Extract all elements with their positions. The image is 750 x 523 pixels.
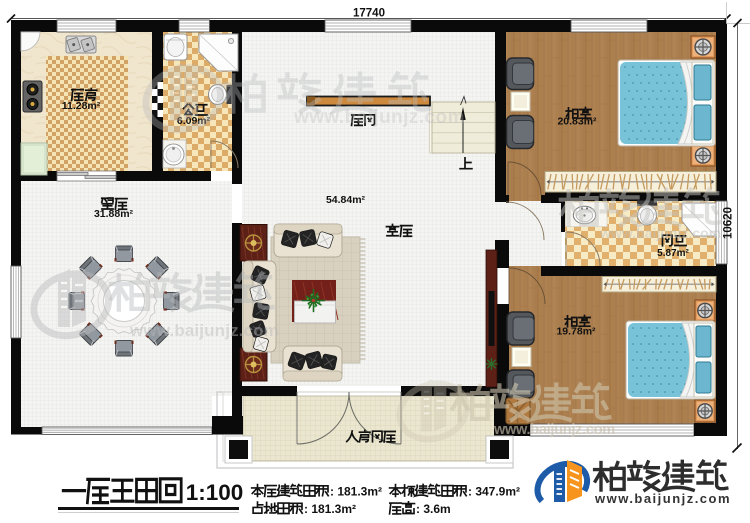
svg-text:5.87m²: 5.87m²: [657, 248, 689, 259]
svg-text:31.88m²: 31.88m²: [94, 208, 134, 220]
svg-text:www.baijunjz.com: www.baijunjz.com: [594, 491, 731, 506]
svg-text:20.83m²: 20.83m²: [557, 116, 597, 128]
svg-text:: 347.9m²: : 347.9m²: [468, 485, 520, 499]
svg-text:www.baijunjz.com: www.baijunjz.com: [599, 225, 722, 241]
svg-text:19.78m²: 19.78m²: [556, 326, 596, 338]
svg-text:: 181.3m²: : 181.3m²: [304, 502, 356, 516]
svg-text:www.baijunjz.com: www.baijunjz.com: [293, 107, 466, 128]
svg-text:17740: 17740: [353, 8, 385, 20]
svg-text:www.baijunjz.com: www.baijunjz.com: [129, 321, 280, 340]
svg-text:10620: 10620: [723, 207, 735, 239]
svg-text:www.baijunjz.com: www.baijunjz.com: [493, 422, 616, 438]
svg-text:1:100: 1:100: [186, 480, 244, 505]
svg-text:: 181.3m²: : 181.3m²: [330, 485, 382, 499]
svg-text:: 3.6m: : 3.6m: [416, 502, 451, 516]
svg-text:54.84m²: 54.84m²: [326, 194, 366, 206]
svg-text:11.28m²: 11.28m²: [62, 100, 101, 112]
